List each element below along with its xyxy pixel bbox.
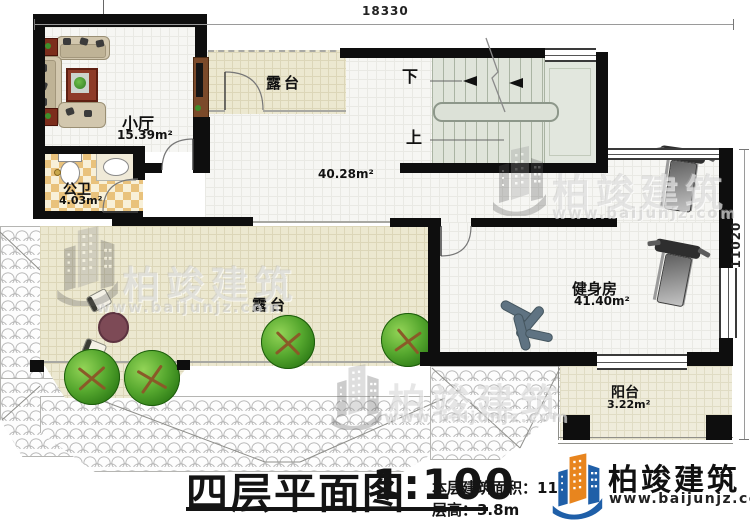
wall-top-living [33,14,207,27]
stair-up-label: 上 [406,124,422,148]
dimension-right-tick-bottom [739,439,749,440]
dimension-top-value: 18330 [362,4,409,18]
wall-terrace-right [428,223,440,366]
dimension-top-tick-left [34,19,35,30]
terrace-table [98,312,129,343]
company-website: www.baijunjz.com [609,491,750,507]
terrace-hall-edge [253,221,393,223]
company-logo-icon [549,451,605,521]
dimension-right-value: 11020 [729,215,743,275]
wall-right-lower [719,338,733,366]
dimension-top-tick-right [733,19,734,30]
sofa-pillow-8 [84,110,92,117]
terrace-top-label: 露台 [266,72,302,93]
coffee-table-plant [74,77,86,89]
bathroom-area: 4.03m² [59,194,102,207]
floor-drain [54,169,61,176]
floor-plan-canvas: 小厅 15.39m² 公卫 4.03m² 露台 40.28m² 健身房 41.4… [0,0,750,523]
watermark-logo-icon [50,226,124,306]
dimension-top-line [35,24,733,25]
wall-stairwell-right [596,52,608,173]
watermark-logo-icon [488,146,550,216]
wall-living-bath-divider [33,146,145,154]
tree-1 [64,349,120,405]
side-table-plant-1 [45,43,51,49]
terrace-post-right [177,360,190,370]
sink-basin [103,158,129,176]
balcony-post-right [706,415,732,440]
window-right [719,268,737,338]
wall-tv-pillar-lower [193,117,210,173]
sofa-pillow-1 [63,38,71,45]
floor-area-text: 本层建筑面积：112 [432,477,568,498]
tv-plant [195,105,201,111]
treadmill-2 [636,236,711,311]
watermark-3 [326,364,386,434]
watermark-2-site: www.baijunjz.com [552,204,737,222]
watermark-3-site: www.baijunjz.com [384,408,569,426]
wall-top-mid [340,48,545,58]
sofa-chaise [58,102,106,128]
window-ne [608,148,719,160]
roof-left-strip [0,226,44,400]
floor-height-text: 层高：3.8m [432,499,519,520]
balcony-area: 3.22m² [607,398,650,411]
hall-area: 40.28m² [318,167,374,181]
tree-2 [124,350,180,406]
terrace-top-bottom-edge-left [208,110,225,112]
watermark-logo-icon [326,364,386,430]
terrace-post-left [30,360,44,372]
window-balcony-door [597,354,687,370]
dimension-right-line [744,150,745,440]
company-logo [549,451,605,523]
dimension-right-tick-top [739,149,749,150]
wall-tv-pillar-upper [195,27,207,57]
wall-left-outer [33,14,45,219]
wall-hall-stub [142,163,162,173]
tv-screen [196,63,203,97]
wall-gym-south-left [428,352,597,366]
watermark-1-site: www.baijunjz.com [96,298,281,316]
wall-terrace-top [112,217,253,226]
dumbbell-rack [492,298,554,350]
watermark-2 [488,146,550,220]
window-top [545,48,596,62]
dimension-extension-tick [103,0,104,14]
terrace-top-bottom-edge-right [263,110,346,112]
stair-down-label: 下 [402,63,418,87]
gym-area: 41.40m² [574,294,630,308]
stair-handrail [433,102,559,122]
living-room-area: 15.39m² [117,128,173,142]
tree-3 [261,315,315,369]
side-table-plant-2 [45,113,51,119]
